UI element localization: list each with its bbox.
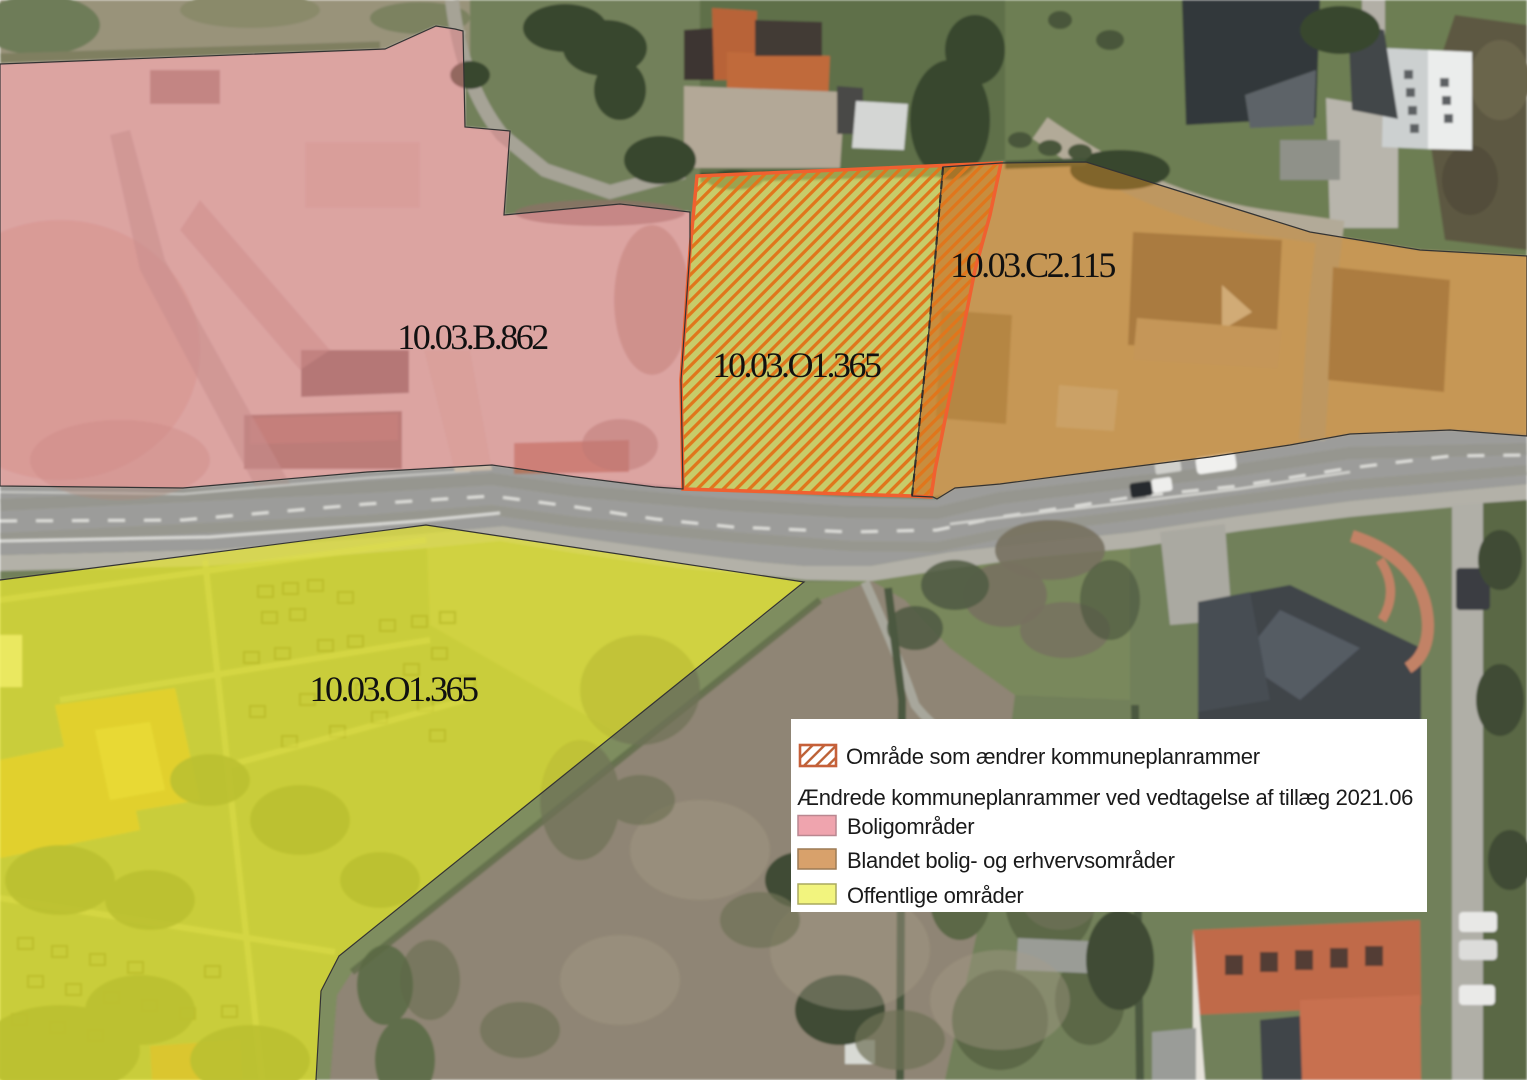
- svg-text:Offentlige områder: Offentlige områder: [847, 883, 1023, 908]
- svg-text:Boligområder: Boligområder: [847, 814, 974, 839]
- svg-text:Ændrede kommuneplanrammer ved: Ændrede kommuneplanrammer ved vedtagelse…: [797, 785, 1413, 810]
- svg-text:Blandet bolig- og erhvervsområ: Blandet bolig- og erhvervsområder: [847, 848, 1175, 873]
- svg-text:10.03.O1.365: 10.03.O1.365: [713, 345, 881, 385]
- svg-text:10.03.C2.115: 10.03.C2.115: [950, 245, 1115, 285]
- svg-text:Område som ændrer kommuneplanr: Område som ændrer kommuneplanrammer: [846, 744, 1260, 769]
- svg-text:10.03.B.862: 10.03.B.862: [397, 317, 548, 357]
- svg-text:10.03.O1.365: 10.03.O1.365: [310, 669, 478, 709]
